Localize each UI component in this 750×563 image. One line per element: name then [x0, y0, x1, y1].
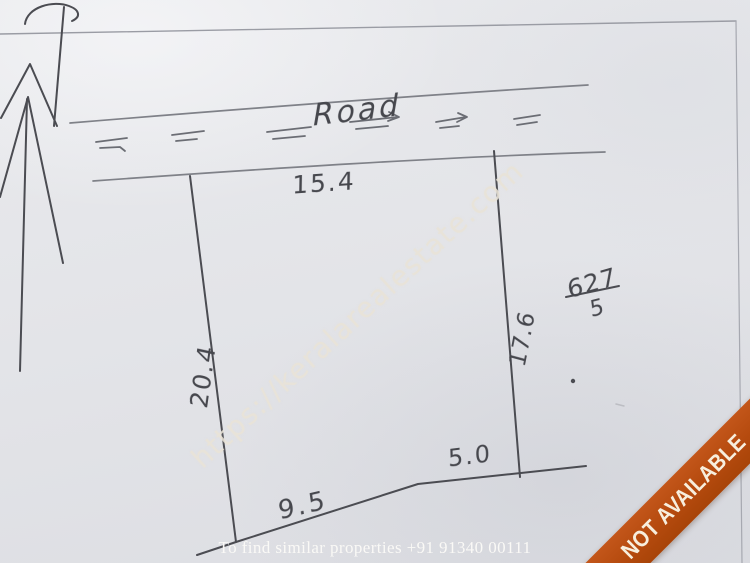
north-arrow-arc: [25, 4, 78, 24]
road-dash-mark: [96, 138, 127, 151]
north-arrow-tail: [20, 99, 27, 371]
dimension-bottom-right-label: 5.0: [448, 439, 493, 472]
road-dash-mark: [514, 115, 540, 125]
north-arrow-zigzag: [1, 64, 57, 126]
road-dash-mark: [172, 131, 204, 141]
paper-right-line: [736, 21, 742, 563]
paper-speck: [616, 404, 624, 406]
ink-dot: [571, 379, 575, 383]
north-arrow-top-shaft: [54, 7, 64, 126]
paper-top-line: [0, 21, 736, 34]
road-dash-mark: [267, 127, 311, 139]
footer-caption: To find similar properties +91 91340 001…: [219, 538, 532, 558]
road-dash-mark: [436, 113, 467, 128]
north-arrow-icon: [0, 4, 78, 371]
dimension-top-label: 15.4: [292, 166, 356, 200]
property-sketch-photo: Road 15.4 20.4 17.6 9.5 5.0 627 5 https:…: [0, 0, 750, 563]
